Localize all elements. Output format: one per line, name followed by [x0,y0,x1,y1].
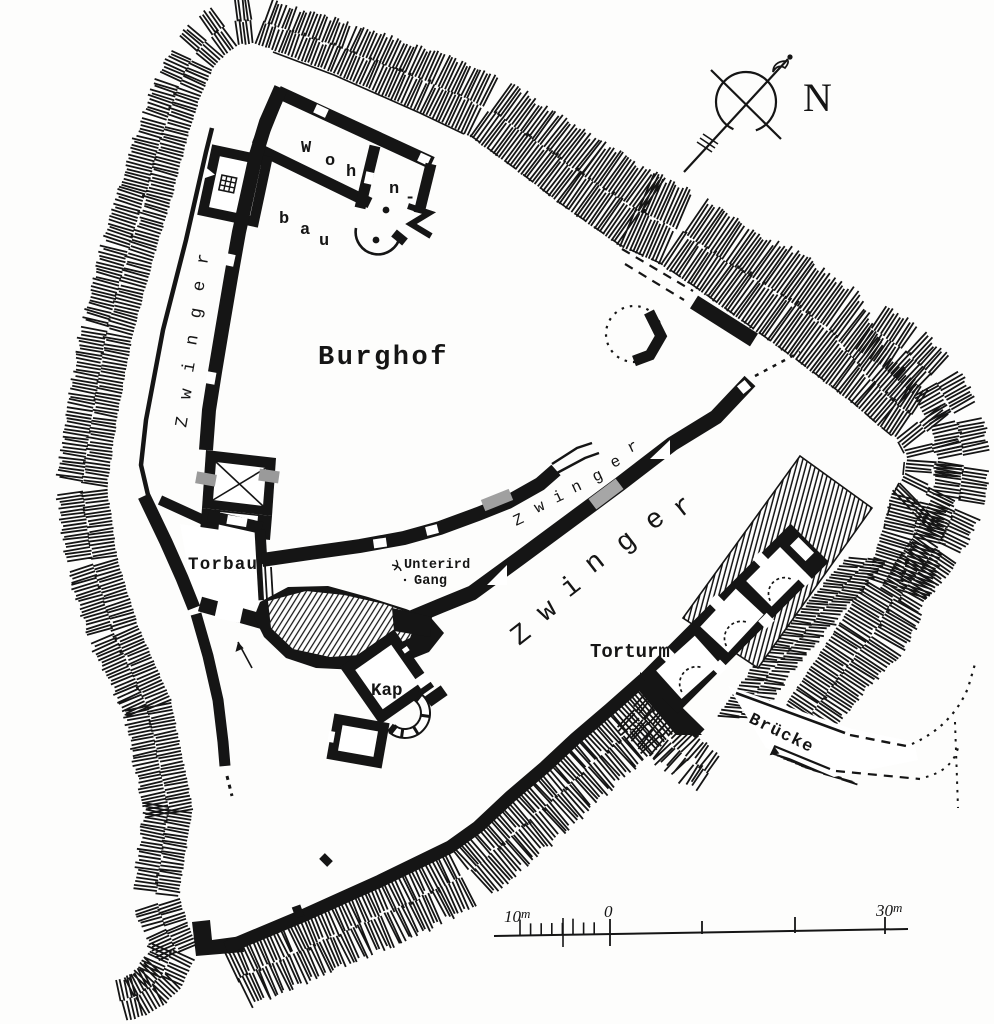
svg-text:0: 0 [604,902,613,921]
svg-text:Torbau: Torbau [188,555,258,575]
svg-text:N: N [803,75,832,120]
svg-text:-: - [405,189,415,208]
svg-text:o: o [325,152,335,171]
svg-text:W: W [301,139,312,158]
svg-text:n: n [389,180,399,199]
svg-text:Torturm: Torturm [590,641,670,663]
svg-text:Kap: Kap [371,681,403,701]
svg-text:a: a [300,221,310,240]
svg-text:u: u [319,232,329,251]
svg-text:h: h [346,163,356,182]
svg-text:Unterird: Unterird [404,558,470,573]
svg-text:Burghof: Burghof [318,343,449,373]
svg-text:b: b [279,210,289,229]
svg-text:Gang: Gang [414,574,447,589]
